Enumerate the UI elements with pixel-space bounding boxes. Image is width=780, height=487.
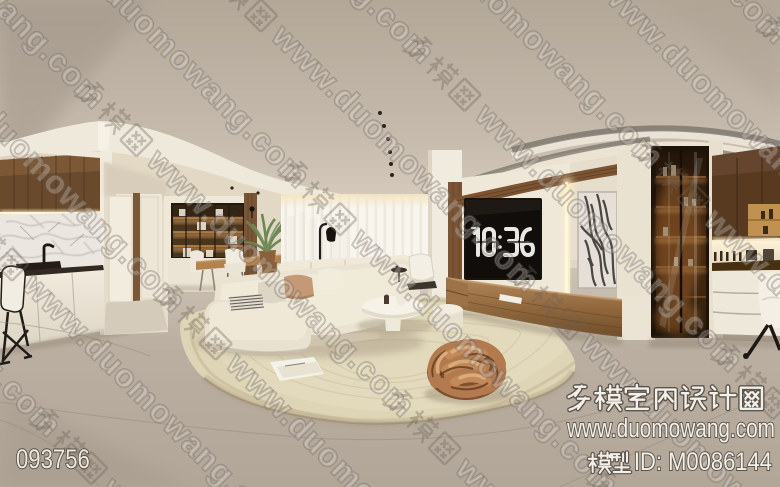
svg-text:ID: M0086144: ID: M0086144 <box>634 448 772 476</box>
svg-text:093756: 093756 <box>16 445 90 475</box>
svg-text:www.duomowang.com: www.duomowang.com <box>566 414 775 443</box>
